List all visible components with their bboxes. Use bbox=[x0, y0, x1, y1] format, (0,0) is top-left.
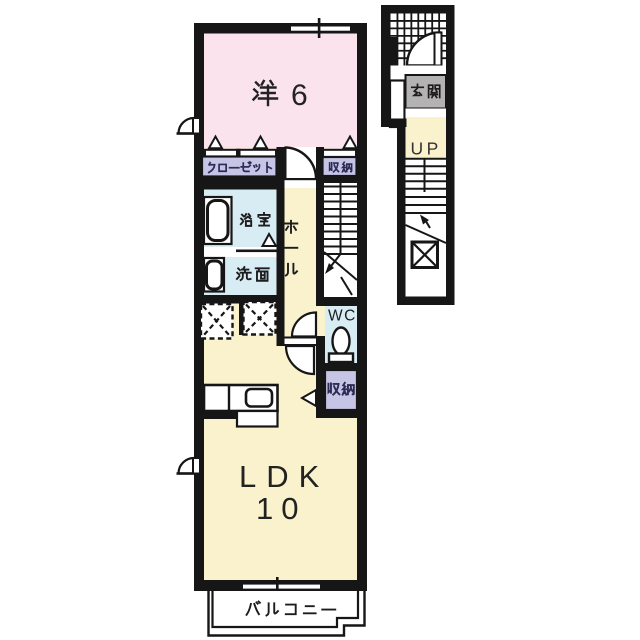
svg-text:UP: UP bbox=[411, 139, 442, 159]
svg-text:6: 6 bbox=[291, 79, 308, 112]
svg-text:10: 10 bbox=[256, 491, 306, 526]
svg-text:WC: WC bbox=[328, 308, 357, 325]
svg-text:LDK: LDK bbox=[239, 459, 329, 494]
